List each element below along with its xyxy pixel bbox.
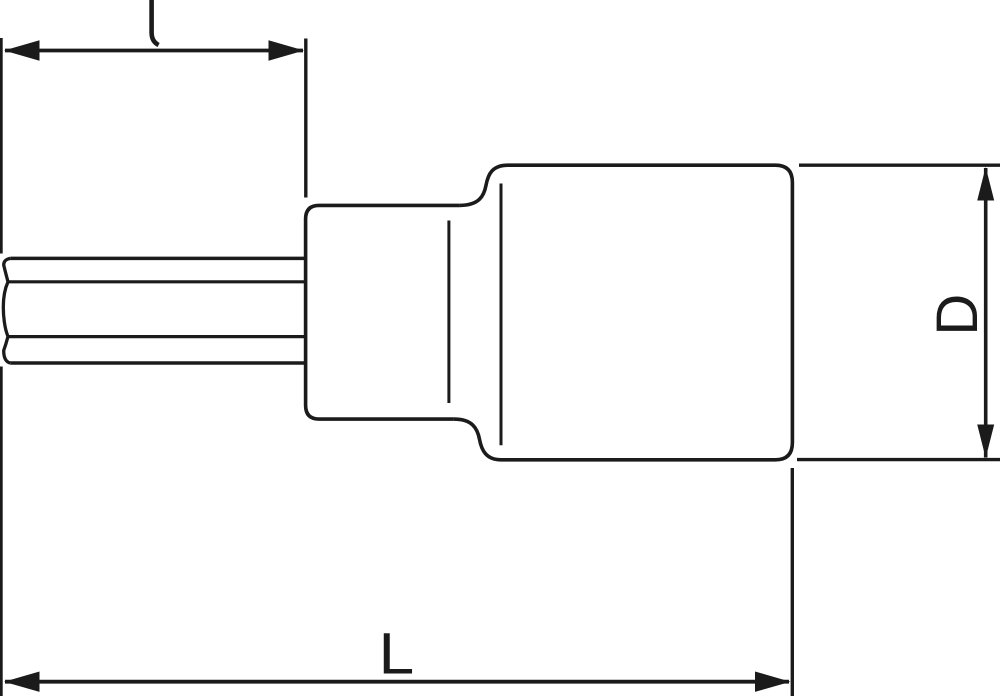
svg-text:D: D	[925, 294, 990, 336]
svg-text:L: L	[379, 622, 415, 687]
